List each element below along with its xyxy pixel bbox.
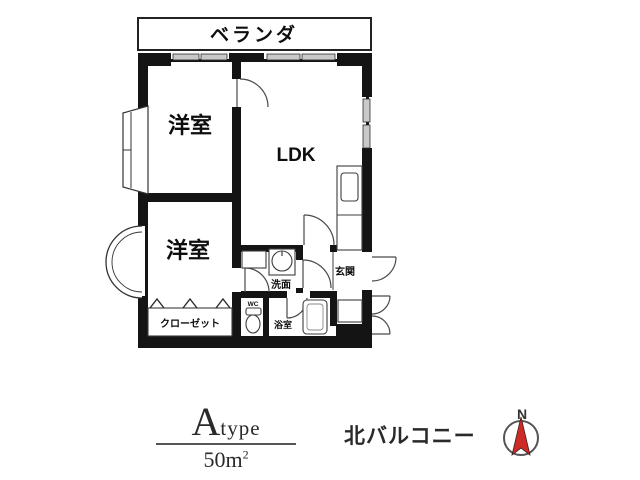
shoe-cabinet <box>333 252 362 322</box>
kitchen-counter <box>337 166 362 250</box>
unit-type-letter: A <box>191 399 220 444</box>
bow-window <box>106 226 142 298</box>
caption-rule <box>156 443 296 445</box>
window <box>173 54 199 60</box>
closet-label: クローゼット <box>160 317 220 330</box>
window <box>363 99 370 122</box>
washing-machine-space <box>242 251 266 268</box>
bedroom1-label: 洋室 <box>168 113 212 138</box>
unit-area: 50m2 <box>152 447 300 473</box>
veranda-label: ベランダ <box>210 23 298 46</box>
door-arc <box>303 260 331 288</box>
door-arc <box>237 79 268 107</box>
bath-label: 浴室 <box>274 319 292 330</box>
window <box>363 125 370 148</box>
floorplan-image: ベランダ <box>0 0 640 480</box>
bathtub <box>303 300 327 334</box>
compass-icon: N <box>504 406 538 455</box>
door-arc <box>245 268 269 292</box>
bay-window <box>123 106 148 194</box>
door-arc <box>304 215 334 245</box>
floorplan-drawing: ベランダ <box>0 0 640 480</box>
toilet <box>246 308 261 333</box>
unit-type-word: type <box>220 416 260 440</box>
unit-type-caption: Atype 50m2 <box>152 402 300 473</box>
entrance-door-arc <box>372 257 396 281</box>
window <box>267 54 300 60</box>
unit-type: Atype <box>152 402 300 442</box>
window <box>201 54 227 60</box>
wc-label: WC <box>248 301 259 308</box>
sink <box>269 249 295 275</box>
window <box>302 54 335 60</box>
bedroom2-label: 洋室 <box>166 238 210 263</box>
entrance-label: 玄関 <box>335 265 355 278</box>
north-balcony-note: 北バルコニー <box>344 420 476 450</box>
closet: クローゼット <box>148 299 232 336</box>
meter-box-doors <box>372 296 390 334</box>
ldk-label: LDK <box>276 145 315 166</box>
veranda: ベランダ <box>138 18 371 50</box>
washroom-label: 洗面 <box>271 278 291 291</box>
